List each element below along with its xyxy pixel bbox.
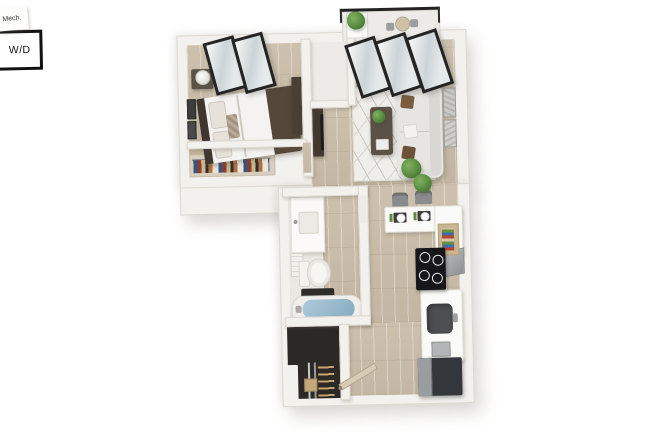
vanity-sink bbox=[298, 211, 318, 233]
bistro-chair bbox=[386, 23, 394, 31]
bedroom-wall-art bbox=[187, 121, 196, 139]
living-room-wall-art bbox=[443, 119, 457, 147]
bedroom-wall-art bbox=[187, 99, 196, 119]
mech-room-label: Mech. bbox=[0, 6, 29, 32]
coffee-table-plant bbox=[372, 110, 385, 123]
mechanical-closet-floor bbox=[309, 42, 348, 103]
wall-mech-bottom bbox=[310, 100, 350, 109]
refrigerator-panel bbox=[418, 358, 433, 396]
kitchen-sink bbox=[426, 303, 453, 334]
floor-plan-canvas: Mech. W/D bbox=[0, 0, 649, 433]
apartment-3d-floor-plan: Mech. W/D bbox=[0, 0, 649, 433]
sofa-backrest bbox=[429, 88, 442, 176]
living-room-wall-art bbox=[443, 87, 457, 117]
entry-closet bbox=[298, 362, 345, 399]
countertop-appliance bbox=[431, 341, 450, 356]
refrigerator bbox=[418, 357, 463, 396]
washer-dryer-label: W/D bbox=[0, 30, 43, 71]
bathroom-vanity bbox=[290, 196, 325, 253]
bed bbox=[196, 85, 303, 164]
accent-pillow bbox=[226, 114, 240, 139]
bathroom-doorway bbox=[358, 195, 367, 223]
napkin bbox=[413, 212, 416, 220]
laundry-closet-floor bbox=[287, 322, 340, 365]
door-hinge bbox=[338, 386, 342, 390]
sofa-pillow bbox=[400, 95, 414, 109]
wall-bathroom-bottom bbox=[285, 315, 371, 327]
wall-bathroom-top bbox=[282, 185, 368, 197]
bistro-chair bbox=[410, 19, 418, 27]
kitchen-faucet bbox=[453, 313, 458, 322]
vanity-faucet bbox=[294, 220, 298, 224]
closet-hangers bbox=[318, 364, 335, 396]
railing-post bbox=[340, 9, 342, 23]
balcony-plant bbox=[347, 11, 365, 29]
storage-box bbox=[304, 379, 317, 392]
napkin bbox=[389, 214, 392, 222]
bar-stool bbox=[392, 192, 408, 206]
railing-post bbox=[438, 7, 440, 23]
sofa-pillow bbox=[403, 123, 419, 139]
hall-plant bbox=[414, 174, 432, 192]
serving-tray bbox=[376, 139, 389, 150]
bathtub-faucet bbox=[296, 306, 302, 313]
bedroom-doorway bbox=[303, 143, 312, 173]
